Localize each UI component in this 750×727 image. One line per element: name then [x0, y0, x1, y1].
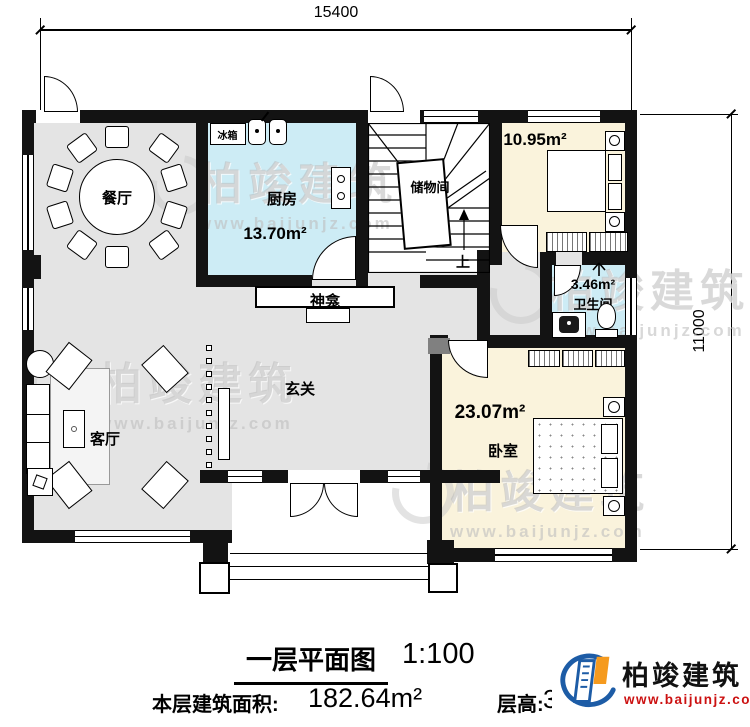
kitchen-area: 13.70m² — [230, 224, 320, 244]
decor-icon — [32, 474, 47, 489]
brand-logo: 柏竣建筑 www.baijunjz.com — [552, 648, 750, 723]
pillow — [608, 183, 622, 210]
wall — [612, 548, 637, 562]
burner-icon — [337, 175, 345, 183]
wall — [430, 348, 442, 562]
nightstand — [603, 397, 625, 417]
guest-bed — [547, 150, 606, 212]
dimension-right-label: 11000 — [691, 291, 709, 371]
screen-partition — [206, 410, 212, 416]
pillow — [608, 154, 622, 181]
porch-pier — [203, 540, 228, 564]
pillow — [601, 458, 618, 488]
floor-plan: 15400 11000 柏竣建筑 www.baijunjz.com 柏竣建筑 w… — [0, 0, 750, 727]
wall — [22, 110, 36, 123]
bathroom-sink — [552, 312, 586, 338]
toilet-tank-icon — [595, 329, 618, 338]
window — [75, 530, 190, 543]
dimension-line-top — [40, 29, 632, 31]
lamp-icon — [608, 401, 620, 413]
sink-drain-icon — [255, 129, 259, 133]
shower-icon — [592, 262, 606, 277]
bedroom-label: 卧室 — [468, 440, 538, 461]
nightstand — [605, 212, 625, 232]
drawing-title: 一层平面图 — [234, 640, 388, 685]
wardrobe — [589, 232, 628, 252]
screen-partition — [206, 436, 212, 442]
brand-website: www.baijunjz.com — [624, 692, 750, 707]
wall — [196, 110, 208, 287]
wall — [490, 252, 502, 265]
window — [228, 470, 262, 483]
window — [424, 110, 478, 123]
fridge-label: 冰箱 — [211, 127, 244, 142]
screen-partition — [206, 423, 212, 429]
drain-icon — [567, 321, 571, 325]
lamp-icon — [609, 135, 620, 146]
extension-line — [40, 18, 41, 110]
dining-label: 餐厅 — [102, 187, 132, 208]
brand-logo-icon — [552, 648, 622, 718]
shrine-altar: 神龛 — [255, 286, 395, 308]
sink-drain-icon — [276, 129, 280, 133]
screen-partition — [206, 358, 212, 364]
porch-step — [230, 579, 428, 580]
extension-line — [631, 18, 632, 115]
screen-partition — [206, 462, 212, 468]
entrance-door-right-leaf — [324, 483, 358, 517]
wall — [22, 250, 34, 288]
screen-partition — [206, 384, 212, 390]
dimension-line-right — [731, 114, 732, 550]
wall-pier — [34, 255, 41, 279]
fridge: 冰箱 — [210, 123, 246, 145]
bedroom-area: 23.07m² — [440, 402, 540, 424]
wall — [540, 252, 556, 265]
bath-area: 3.46m² — [558, 276, 628, 292]
porch-pier — [427, 540, 454, 564]
wall — [80, 110, 205, 123]
lamp-icon — [608, 500, 620, 512]
back-door — [370, 76, 404, 112]
toilet — [595, 303, 619, 339]
nightstand — [605, 131, 625, 151]
dimension-top-label: 15400 — [40, 4, 632, 22]
wall — [478, 110, 528, 123]
porch-step — [230, 553, 428, 554]
screen-partition — [206, 345, 212, 351]
drawing-scale: 1:100 — [402, 638, 475, 671]
living-label: 客厅 — [70, 428, 140, 449]
dining-chair — [105, 246, 129, 268]
stairs-up-label: 上 — [452, 252, 474, 272]
wall — [22, 530, 75, 543]
wall — [356, 123, 368, 287]
screen-partition — [206, 371, 212, 377]
floor-area-label: 本层建筑面积: — [152, 688, 279, 717]
extension-line — [640, 549, 738, 550]
wall — [582, 252, 637, 265]
cabinet — [218, 388, 230, 460]
dining-table: 餐厅 — [79, 159, 155, 235]
nightstand — [603, 496, 625, 516]
door-jamb-block — [428, 338, 450, 354]
wardrobe — [562, 350, 593, 367]
porch-column — [199, 562, 230, 594]
storage-closet-under-stairs — [396, 158, 451, 250]
window — [528, 110, 600, 123]
entrance-door-left-leaf — [290, 483, 324, 517]
sofa — [26, 384, 50, 474]
screen-partition — [206, 397, 212, 403]
extension-line — [640, 114, 738, 115]
wall — [625, 336, 637, 562]
side-table — [27, 468, 53, 496]
porch-column — [428, 563, 458, 593]
floor-height-label: 层高: — [497, 688, 544, 717]
storage-label: 储物间 — [396, 177, 464, 196]
window — [22, 288, 34, 330]
kitchen-counter — [331, 167, 351, 209]
kitchen-label: 厨房 — [242, 188, 322, 209]
floor-area-value: 182.64m² — [308, 683, 422, 714]
wall — [22, 123, 34, 155]
wall — [200, 470, 228, 483]
window — [388, 470, 420, 483]
wall — [360, 470, 388, 483]
dining-chair — [105, 126, 129, 148]
wall — [262, 470, 288, 483]
brand-company-name: 柏竣建筑 — [622, 654, 742, 693]
toilet-bowl-icon — [597, 303, 616, 329]
wall — [600, 110, 637, 123]
porch-step — [230, 566, 428, 567]
wardrobe — [528, 350, 560, 367]
pillow — [601, 424, 618, 454]
burner-icon — [337, 192, 345, 200]
screen-partition — [206, 449, 212, 455]
shrine-table — [306, 308, 350, 323]
window — [22, 155, 34, 250]
window — [495, 548, 612, 562]
lamp-icon — [609, 216, 620, 227]
guest-area: 10.95m² — [495, 130, 575, 150]
dining-exterior-door — [44, 76, 78, 112]
wall — [420, 275, 483, 288]
foyer-label: 玄关 — [265, 378, 335, 399]
wardrobe — [595, 350, 625, 367]
wardrobe — [546, 232, 587, 252]
